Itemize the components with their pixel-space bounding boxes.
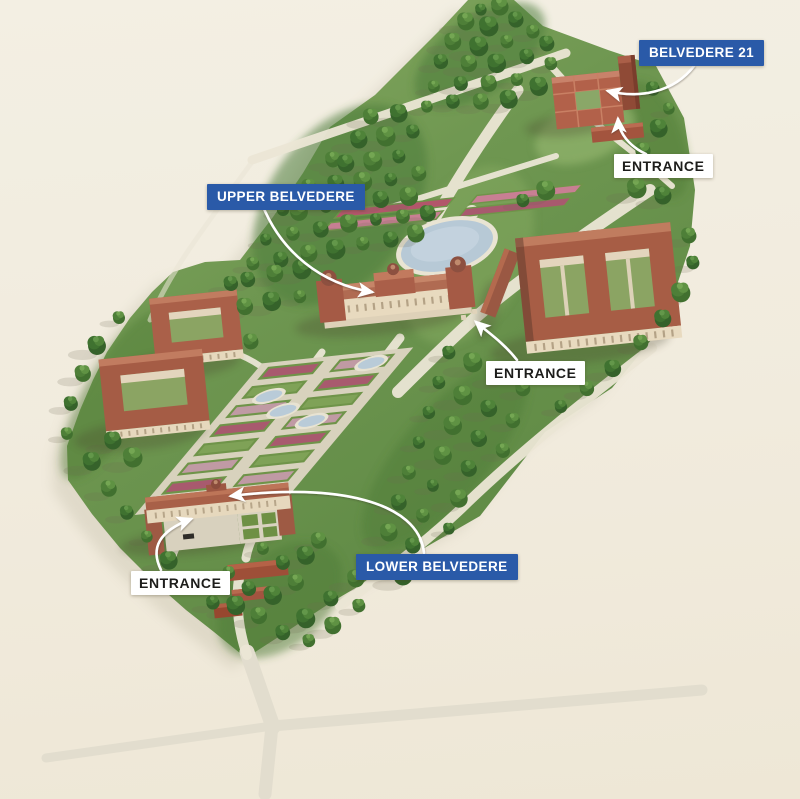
arrow-entrance-lower bbox=[157, 519, 191, 570]
label-entrance-upper: ENTRANCE bbox=[486, 361, 585, 385]
belvedere-grounds-map: BELVEDERE 21 ENTRANCE UPPER BELVEDERE EN… bbox=[0, 0, 800, 799]
annotation-arrows bbox=[0, 0, 800, 799]
label-upper-belvedere: UPPER BELVEDERE bbox=[207, 184, 365, 210]
arrow-entrance-belvedere-21 bbox=[618, 119, 646, 154]
arrow-entrance-upper bbox=[476, 322, 517, 360]
label-belvedere-21: BELVEDERE 21 bbox=[639, 40, 764, 66]
label-entrance-lower: ENTRANCE bbox=[131, 571, 230, 595]
arrow-lower-belvedere bbox=[231, 492, 424, 553]
arrow-belvedere-21 bbox=[608, 66, 694, 94]
arrow-upper-belvedere bbox=[262, 204, 372, 292]
label-lower-belvedere: LOWER BELVEDERE bbox=[356, 554, 518, 580]
label-entrance-belvedere-21: ENTRANCE bbox=[614, 154, 713, 178]
